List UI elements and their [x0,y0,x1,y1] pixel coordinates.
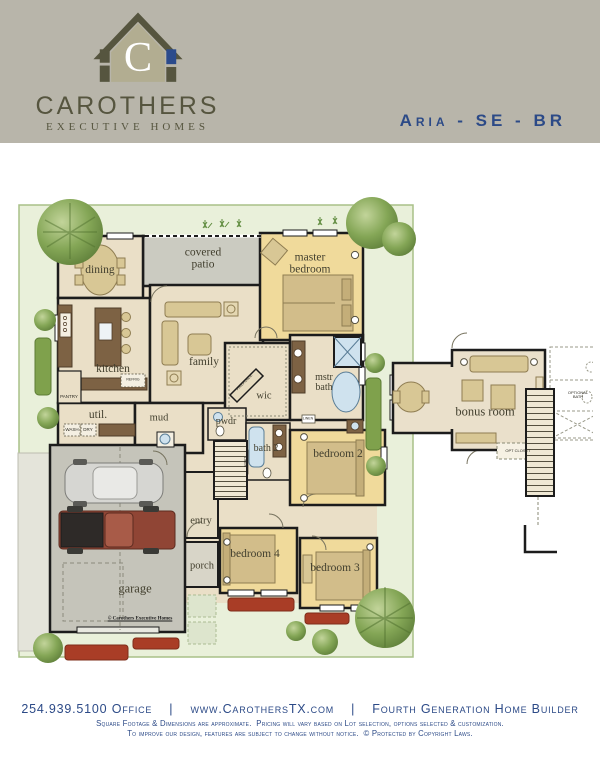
label-wic: wic [244,392,284,403]
plan-copyright: © Carothers Executive Homes [108,617,173,622]
bush-right-2 [366,456,386,476]
stair-bracket [525,525,557,552]
flower-bed-2 [305,613,349,624]
walk-pad-2 [188,622,216,644]
logo-pillar-right-blue [166,49,176,64]
label-refrig: REFRIG [126,378,139,382]
label-bedroom4: bedroom 4 [226,549,284,561]
label-mud: mud [139,414,179,425]
floor-plan: dining covered patio master bedroom fami… [15,195,593,665]
flower-bed-1 [228,598,294,611]
label-bedroom3: bedroom 3 [306,563,364,575]
tree-top-right-2 [382,222,416,256]
bush-right-1 [365,353,385,373]
label-porch: porch [182,562,222,573]
pwdr-toilet [216,426,224,436]
hedge-left [35,338,51,395]
label-util: util. [73,410,123,422]
plan-title: Aria - SE - BR [400,111,566,131]
lamp-table-2 [167,371,181,385]
label-mstr-bath: mstr bath [308,373,340,393]
bonus-plan [393,347,593,552]
bedroom3-bed [316,552,368,600]
bush-bottom-1 [312,629,338,655]
bonus-join-patch [447,367,456,429]
hedge-right [366,378,381,450]
family-sofa [165,302,221,317]
stairs-main [213,440,248,500]
label-entry: entry [181,517,221,528]
logo-pillar-left-top [100,49,110,62]
bedroom2-furniture [301,434,364,502]
page: { "header": { "brand": "CAROTHERS", "bra… [0,0,600,777]
footer-disclaimer-2: To improve our design, features are subj… [0,729,600,738]
label-bonus-room: bonus room [440,406,530,419]
label-covered-patio: covered patio [174,247,232,270]
label-pantry: PANTRY [60,395,78,400]
lamp-table [224,302,238,316]
car-sedan [65,459,163,507]
sink-icon [99,323,112,340]
car-truck [59,506,175,554]
flower-bed-3 [65,645,128,660]
label-dining: dining [65,265,135,277]
bonus-sofa [470,356,528,372]
label-optional-bath: OPTIONAL BATH [565,391,591,399]
label-bedroom2: bedroom 2 [309,449,367,461]
label-linen-2: LINEN [242,457,246,467]
bush-bottom-2 [286,621,306,641]
bush-left-2 [37,407,59,429]
footer-contact-line: 254.939.5100 Office | www.CarothersTX.co… [0,702,600,716]
label-wash: WASH [65,428,78,433]
brand-subtitle: EXECUTIVE HOMES [30,121,225,133]
stairs-bonus [525,388,555,497]
ottoman [188,334,211,355]
header-band: C CAROTHERS EXECUTIVE HOMES Aria - SE - … [0,0,600,143]
label-pwdr: pwdr [206,417,246,427]
footer: 254.939.5100 Office | www.CarothersTX.co… [0,702,600,738]
logo-pillar-left-bottom [100,66,110,82]
logo-pillar-right-bottom [166,67,176,82]
brand-name: CAROTHERS [30,92,225,121]
label-bath2: bath 2 [252,444,280,454]
label-family: family [174,357,234,369]
footer-disclaimer-1: Square Footage & Dimensions are approxim… [0,719,600,728]
label-master-bedroom: master bedroom [277,252,343,275]
bath2-toilet [263,468,271,478]
flower-bed-4 [133,638,179,649]
label-kitchen: kitchen [83,364,143,376]
label-garage: garage [105,583,165,596]
label-linen-1: LINEN [303,417,313,421]
carothers-logo: C [92,7,184,93]
bush-left-1 [34,309,56,331]
tree-bottom-left [33,633,63,663]
label-opt-closet: OPT CLOSET [505,449,530,453]
logo-letter: C [124,34,152,81]
label-dry: DRY [83,428,92,433]
walk-pad-1 [188,595,216,617]
